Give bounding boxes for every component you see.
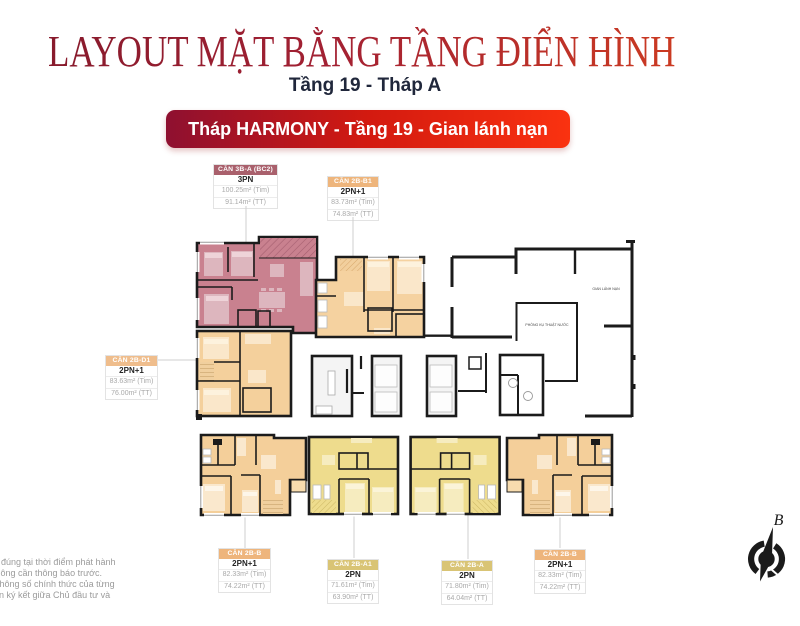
svg-text:GIAN LÁNH NẠN: GIAN LÁNH NẠN — [592, 287, 620, 291]
svg-text:PHÒNG KỤ THUẬT NƯỚC: PHÒNG KỤ THUẬT NƯỚC — [525, 322, 569, 327]
svg-text:B: B — [774, 512, 784, 529]
